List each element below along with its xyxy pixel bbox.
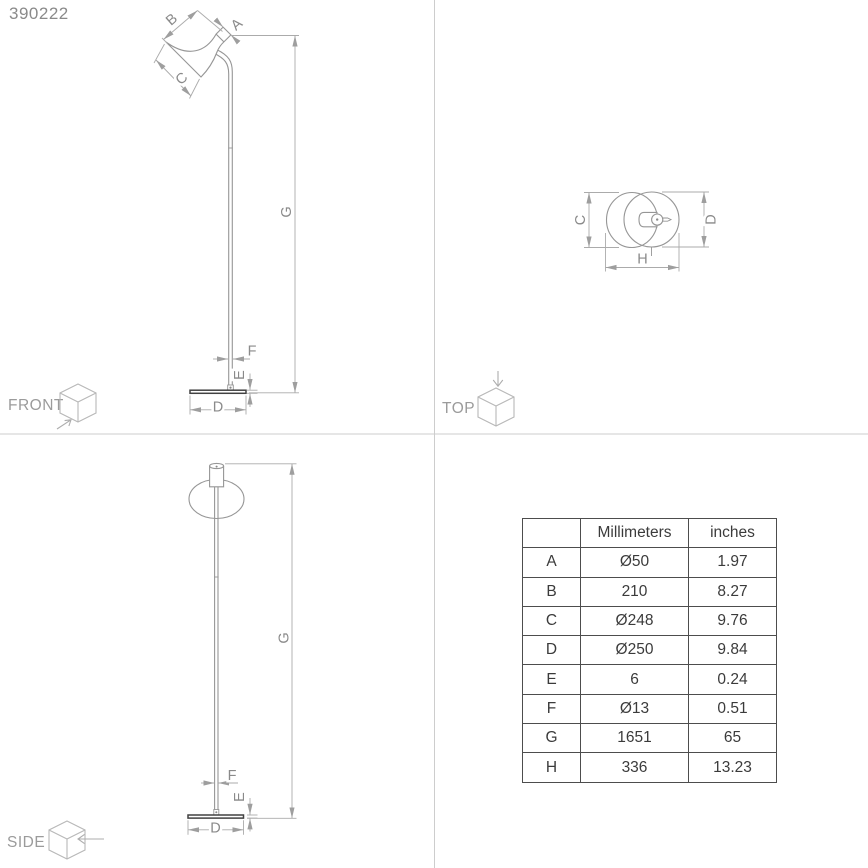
front-dim-label-g: G <box>279 206 295 217</box>
table-row: G 1651 65 <box>523 724 777 753</box>
table-row: E 6 0.24 <box>523 665 777 694</box>
mm-value-cell: Ø13 <box>581 694 689 723</box>
side-view-label: SIDE <box>7 834 45 852</box>
mm-value-cell: 1651 <box>581 724 689 753</box>
mm-value-cell: 6 <box>581 665 689 694</box>
front-dim-label-a: A <box>228 16 246 35</box>
side-dim-label-f: F <box>228 768 237 784</box>
side-base <box>188 815 244 818</box>
top-view-cube-icon <box>473 369 519 431</box>
front-pole <box>214 53 229 390</box>
side-view-labels: G F E D <box>210 632 292 836</box>
side-view-drawing <box>188 463 244 818</box>
inches-value-cell: 65 <box>689 724 777 753</box>
dim-letter-cell: C <box>523 606 581 635</box>
product-code: 390222 <box>9 4 69 24</box>
mm-value-cell: Ø250 <box>581 636 689 665</box>
front-base <box>190 390 246 393</box>
dim-letter-cell: A <box>523 548 581 577</box>
dim-letter-cell: B <box>523 577 581 606</box>
header-mm-cell: Millimeters <box>581 519 689 548</box>
front-view-dimensions <box>154 11 299 415</box>
front-dim-label-d: D <box>213 400 223 416</box>
mm-value-cell: Ø248 <box>581 606 689 635</box>
front-dim-label-c: C <box>173 70 191 89</box>
top-dim-label-h: H <box>637 252 647 268</box>
dimension-table: Millimeters inches A Ø50 1.97 B 210 8.27… <box>522 518 777 783</box>
front-dim-label-e: E <box>232 370 248 380</box>
dim-letter-cell: E <box>523 665 581 694</box>
top-pivot-pin <box>663 218 671 221</box>
mm-value-cell: Ø50 <box>581 548 689 577</box>
inches-value-cell: 8.27 <box>689 577 777 606</box>
front-dim-label-f: F <box>248 344 257 360</box>
side-dim-label-e: E <box>232 792 248 802</box>
header-inches-cell: inches <box>689 519 777 548</box>
table-row: H 336 13.23 <box>523 753 777 782</box>
table-header-row: Millimeters inches <box>523 519 777 548</box>
table-row: A Ø50 1.97 <box>523 548 777 577</box>
mm-value-cell: 336 <box>581 753 689 782</box>
inches-value-cell: 13.23 <box>689 753 777 782</box>
dim-letter-cell: G <box>523 724 581 753</box>
top-view-drawing <box>607 192 680 256</box>
dim-letter-cell: D <box>523 636 581 665</box>
top-dim-label-d: D <box>704 214 720 224</box>
dimension-sheet: B A C G F E D <box>0 0 868 868</box>
top-dim-label-c: C <box>573 215 589 225</box>
inches-value-cell: 1.97 <box>689 548 777 577</box>
table-row: C Ø248 9.76 <box>523 606 777 635</box>
side-view-dimensions <box>188 464 297 835</box>
side-dim-label-d: D <box>210 821 220 837</box>
front-view-cube-icon <box>55 381 101 431</box>
inches-value-cell: 0.24 <box>689 665 777 694</box>
inches-value-cell: 0.51 <box>689 694 777 723</box>
dim-letter-cell: F <box>523 694 581 723</box>
top-view-label: TOP <box>442 400 475 418</box>
table-row: B 210 8.27 <box>523 577 777 606</box>
inches-value-cell: 9.76 <box>689 606 777 635</box>
side-dim-label-g: G <box>277 632 293 643</box>
side-view-cube-icon <box>44 818 106 866</box>
table-row: D Ø250 9.84 <box>523 636 777 665</box>
dim-letter-cell: H <box>523 753 581 782</box>
mm-value-cell: 210 <box>581 577 689 606</box>
inches-value-cell: 9.84 <box>689 636 777 665</box>
table-row: F Ø13 0.51 <box>523 694 777 723</box>
header-dim-cell <box>523 519 581 548</box>
